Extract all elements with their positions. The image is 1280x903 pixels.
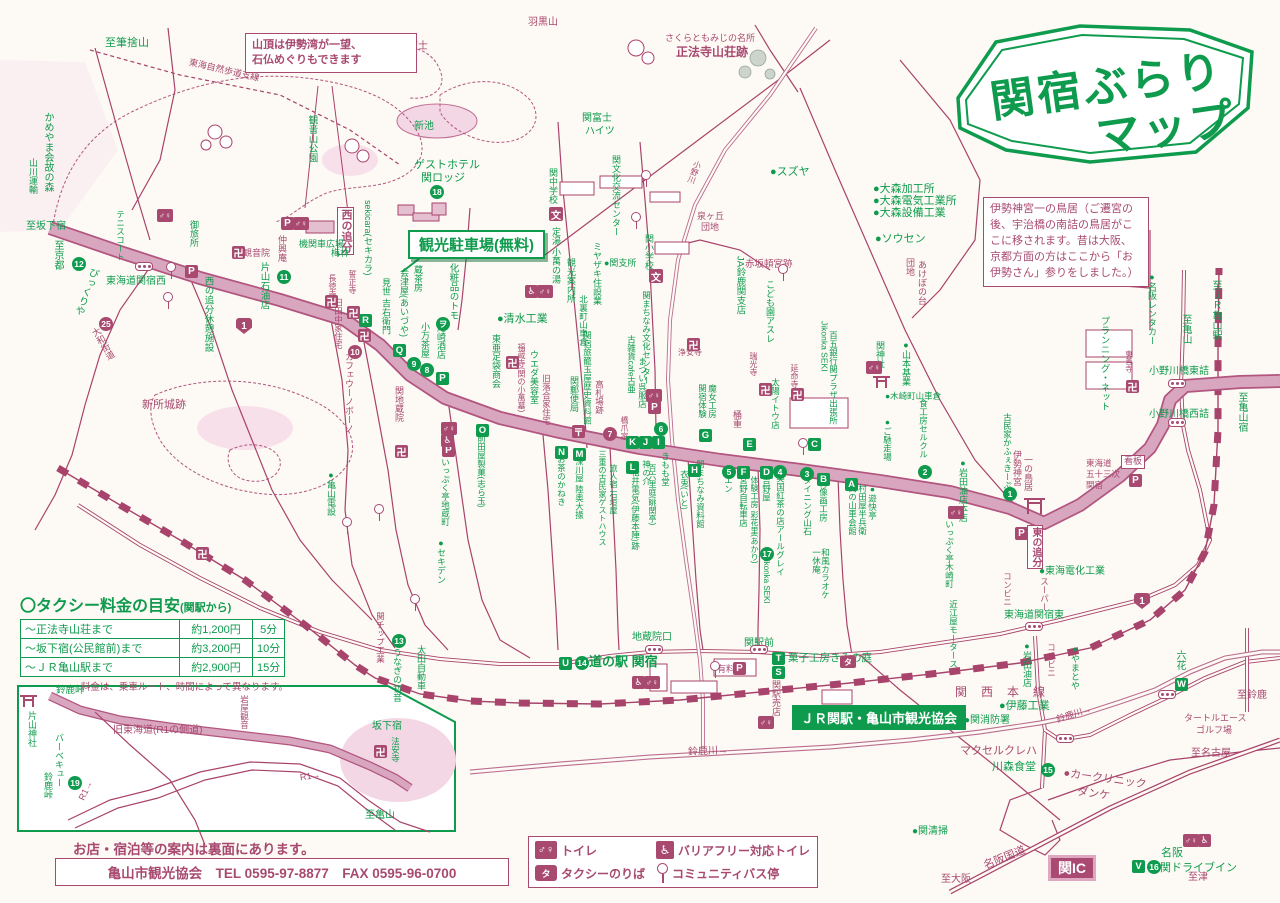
map-label: いっぷく亭木崎町 — [945, 520, 954, 588]
bus-stop-pole — [379, 513, 381, 521]
map-label: 松井電気(伊藤本陣)跡 — [631, 468, 640, 550]
map-label: 関中学校 — [548, 168, 557, 204]
letter-badge: M — [573, 448, 586, 461]
map-label: ゲストホテル — [414, 160, 480, 172]
map-label: 旧落合家住宅 — [542, 374, 551, 425]
taxi-duration: 10分 — [253, 639, 285, 658]
map-label: 化粧品のトモ — [448, 263, 458, 320]
temple-manji-icon: 卍 — [358, 329, 371, 342]
map-canvas — [0, 0, 1280, 903]
map-label: JA鈴鹿関支店 — [735, 256, 745, 315]
taxi-fare-table: 〜正法寺山荘まで約1,200円5分〜坂下宿(公民館前)まで約3,200円10分〜… — [20, 619, 285, 677]
map-label: ●伊藤工業 — [999, 701, 1050, 713]
bus-stop-icon — [710, 661, 720, 678]
parking-icon: P — [436, 372, 449, 385]
toilet-icon: ♂♀ — [535, 841, 557, 859]
number-badge: 8 — [420, 363, 434, 377]
signal-dot — [143, 265, 146, 268]
map-label: 太田自動車 — [416, 645, 425, 690]
map-label: 岩屋観音 — [240, 695, 249, 729]
map-label: 団地 — [905, 258, 914, 276]
school-icon: 文 — [549, 207, 563, 221]
map-label: 至大阪 — [941, 875, 971, 886]
map-label: 鈴鹿峠 — [43, 772, 52, 799]
bus-stop-icon — [166, 262, 176, 279]
torii-icon — [875, 376, 888, 387]
map-label: 伊勢神宮 — [1012, 450, 1021, 486]
map-label: 片山石油店 — [259, 262, 269, 310]
signal-dot — [1171, 382, 1174, 385]
map-label: こども園アスレ — [765, 280, 774, 343]
map-label: 名阪 — [1161, 848, 1183, 860]
temple-manji-icon: 卍 — [232, 246, 245, 259]
map-label: ゴルフ場 — [1196, 726, 1232, 736]
signal-dot — [1038, 625, 1041, 628]
map-label: 至ＪＲ亀山駅 — [1210, 280, 1220, 340]
map-label: 関駅売店 — [771, 680, 780, 716]
signal-dot — [1064, 737, 1067, 740]
letter-badge: V — [1132, 860, 1145, 873]
map-legend: ♂♀トイレ♿バリアフリー対応トイレタタクシーのりばコミュニティバス停 — [528, 836, 818, 888]
traffic-signal-icon — [1158, 690, 1176, 699]
map-label: 至名古屋 — [1191, 749, 1231, 760]
taxi-fare: 約2,900円 — [180, 658, 253, 677]
traffic-signal-icon — [750, 645, 768, 654]
signal-dot — [1059, 737, 1062, 740]
taxi-fare-panel: 〇タクシー料金の目安(関駅から) 〜正法寺山荘まで約1,200円5分〜坂下宿(公… — [20, 592, 288, 693]
map-label: 関富士 — [582, 114, 612, 125]
tourist-parking-banner: 観光駐車場(無料) — [408, 230, 545, 259]
letter-badge: E — [743, 438, 756, 451]
traffic-signal-icon — [1025, 622, 1043, 631]
parking-icon: P — [733, 662, 746, 675]
number-badge: 16 — [1147, 860, 1161, 874]
letter-badge: S — [772, 666, 785, 679]
letter-badge: R — [359, 314, 372, 327]
signal-dot — [1033, 625, 1036, 628]
map-label: 高札場跡 — [595, 380, 604, 414]
jr-seki-station-box: ＪＲ関駅・亀山市観光協会 — [792, 705, 966, 730]
map-label: 福蔵寺(関の小萬墓) — [517, 343, 525, 412]
number-badge: 6 — [654, 422, 668, 436]
map-label: 誓正寺 — [348, 270, 356, 294]
signal-dot — [1069, 737, 1072, 740]
wheelchair-icon: ♿ — [1198, 834, 1211, 847]
letter-badge: B — [817, 473, 830, 486]
bus-stop-icon — [631, 212, 641, 229]
map-label: 見世 吉右衛門 — [381, 278, 390, 335]
number-badge: 15 — [1041, 763, 1055, 777]
map-label: 関宿 — [1086, 481, 1103, 490]
torii-post-l — [1027, 500, 1029, 514]
number-badge: 17 — [760, 547, 774, 561]
map-label: お茶のかねき — [557, 455, 566, 506]
map-label: 六花 — [1174, 650, 1184, 670]
map-label: 観音院 — [243, 249, 270, 259]
map-label: 関ロッジ — [421, 173, 465, 185]
taxi-fare-title: 〇タクシー料金の目安(関駅から) — [20, 592, 288, 616]
torii-post-r — [885, 378, 887, 388]
signal-dot — [1176, 421, 1179, 424]
taxi-fare-row: 〜坂下宿(公民館前)まで約3,200円10分 — [21, 639, 285, 658]
map-label: ●やまとや — [1070, 644, 1079, 690]
map-label: 鈴鹿川→ — [688, 746, 729, 759]
signal-dot — [763, 648, 766, 651]
traffic-signal-icon — [1056, 734, 1074, 743]
temple-manji-icon: 卍 — [196, 547, 209, 560]
signal-dot — [758, 648, 761, 651]
bus-stop-pole — [171, 271, 173, 279]
map-label: 蔵茶房 — [413, 265, 422, 292]
taxi-stand-icon: タ — [840, 656, 856, 668]
map-label: スーパー — [1040, 577, 1049, 611]
taxi-stand-icon: タ — [535, 865, 557, 881]
torii-post-r — [32, 697, 34, 707]
map-label: かめやま会故の森 — [42, 112, 52, 192]
toilet-icon: ♂♀ — [537, 285, 553, 298]
temple-manji-icon: 卍 — [347, 306, 360, 319]
number-badge: 12 — [72, 257, 86, 271]
post-office-icon: 〒 — [572, 425, 585, 438]
map-label: Jikonka SEKI — [762, 556, 770, 604]
map-label: ●亀山電設 — [326, 470, 335, 516]
map-label: ダイニング山石 — [803, 476, 812, 536]
signal-dot — [658, 648, 661, 651]
summit-callout: 山頂は伊勢湾が一望、 石仏めぐりもできます — [245, 33, 417, 73]
map-label: 片山神社 — [27, 711, 36, 747]
map-label: 至亀山 — [365, 811, 395, 822]
legend-item: タタクシーのりば — [535, 863, 646, 883]
map-label: ハイツ — [585, 127, 615, 138]
map-label: 道の駅 関宿 — [589, 655, 658, 669]
letter-badge: A — [845, 478, 858, 491]
map-label: 旧東海道(R1の側道) — [113, 726, 202, 737]
toilet-icon: ♂♀ — [293, 217, 309, 230]
map-label: 観光案内所 — [566, 258, 575, 303]
letter-badge: T — [772, 652, 785, 665]
bus-stop-icon — [374, 504, 384, 521]
wheelchair-icon: ♿ — [441, 434, 454, 447]
signal-dot — [753, 648, 756, 651]
map-label: 体験工房 彩花里(あかり) — [750, 476, 758, 564]
torii-post-l — [876, 378, 878, 388]
taxi-destination: 〜坂下宿(公民館前)まで — [21, 639, 180, 658]
map-label: 食工房セルクル — [919, 399, 928, 459]
map-label: 西の追分休憩施設 — [203, 276, 213, 352]
map-label: 魔女工房 — [708, 384, 717, 418]
signal-dot — [1181, 382, 1184, 385]
taxi-fare-row: 〜ＪＲ亀山駅まで約2,900円15分 — [21, 658, 285, 677]
map-label: 瑞光寺 — [749, 352, 757, 376]
toilet-icon: ♂♀ — [758, 716, 774, 729]
letter-badge: K — [626, 436, 639, 449]
map-label: プランニング・ネット — [1099, 316, 1109, 411]
signal-dot — [1171, 693, 1174, 696]
map-label: 至坂下宿 — [26, 222, 66, 233]
map-label: 英国紅茶の店アールグレイ — [776, 474, 785, 576]
traffic-signal-icon — [135, 262, 153, 271]
bus-stop-icon — [641, 170, 651, 187]
footer-contact: 亀山市観光協会 TEL 0595‐97‐8877 FAX 0595‐96‐070… — [55, 858, 509, 886]
number-badge: 5 — [722, 465, 736, 479]
map-label: 地蔵院口 — [632, 633, 672, 644]
letter-badge: W — [1175, 678, 1188, 691]
signal-dot — [1028, 625, 1031, 628]
map-label: 衣兎(いと) — [680, 470, 689, 510]
map-label: 関チップ工業 — [376, 612, 385, 663]
taxi-destination: 〜ＪＲ亀山駅まで — [21, 658, 180, 677]
map-label: ●東海電化工業 — [1039, 567, 1105, 578]
footer-note: お店・宿泊等の案内は裏面にあります。 — [73, 838, 315, 858]
map-label: 前田屋製菓(志ら玉) — [477, 434, 486, 508]
map-label: ●山本基業 — [901, 340, 910, 386]
map-label: 関文化交流センター — [611, 155, 620, 236]
map-label: バーベキュー — [54, 733, 63, 787]
map-label: ●大森設備工業 — [873, 208, 946, 220]
map-label: テニスコート — [116, 210, 125, 261]
map-label: いっぷく亭地蔵町 — [441, 458, 450, 526]
torii-post-r — [1040, 500, 1042, 514]
torii-icon — [1026, 498, 1043, 512]
map-label: 東海道 — [1086, 459, 1112, 468]
legend-item: ♂♀トイレ — [535, 841, 646, 859]
map-label: 関小学校 — [644, 234, 653, 270]
temple-manji-icon: 卍 — [395, 445, 408, 458]
map-label: ●ご馳走場 — [883, 417, 892, 461]
letter-badge: I — [652, 436, 665, 449]
map-label: 五十三次 — [1086, 470, 1120, 479]
number-badge: 13 — [392, 634, 406, 648]
map-label: 関宿体験 — [698, 384, 707, 418]
taxi-fare-title-text: 〇タクシー料金の目安 — [20, 598, 180, 615]
map-label: タートルエース — [1184, 714, 1247, 724]
wheelchair-icon: ♿ — [632, 676, 645, 689]
seki-juku-walking-map: 至筆捨山関富士羽黒山さくらともみじの名所正法寺山荘跡東海自然歩道支線かめやま会故… — [0, 0, 1280, 903]
map-label: マクセルクレハ — [960, 746, 1037, 758]
map-label: ウエダ美容室 — [529, 350, 538, 404]
bus-stop-icon — [778, 264, 788, 281]
map-label: 東亜足袋商会 — [491, 334, 500, 388]
map-label: 関西本線 — [955, 686, 1059, 699]
map-label: コンビニ — [1003, 572, 1012, 606]
map-label: 至筆捨山 — [105, 38, 149, 50]
bus-stop-pole — [662, 874, 664, 883]
letter-badge: Q — [393, 344, 406, 357]
map-label: 団地 — [701, 223, 719, 233]
signal-dot — [138, 265, 141, 268]
map-label: 泉ヶ丘 — [697, 212, 724, 222]
map-label: 法安寺 — [391, 737, 400, 763]
temple-manji-icon: 卍 — [687, 338, 700, 351]
temple-manji-icon: 卍 — [506, 356, 519, 369]
map-label: 関宿旅籠玉屋歴史資料館 — [583, 331, 592, 425]
map-label: 深川屋 陸奥大掾 — [575, 457, 584, 519]
number-badge: 1 — [1003, 487, 1017, 501]
map-label: 百五銀行関プラザ出張所 — [829, 331, 838, 425]
map-label: コンビニ — [1047, 643, 1056, 677]
map-label: ●岩田油店 — [1022, 641, 1031, 687]
bus-stop-icon — [163, 292, 173, 309]
map-label: 吉野屋 — [762, 476, 771, 502]
map-label: さくらともみじの名所 — [665, 34, 755, 44]
legend-label: トイレ — [561, 842, 597, 859]
map-label: 小万茶屋 — [420, 322, 429, 358]
number-badge: 25 — [99, 317, 113, 331]
bus-stop-pole — [347, 526, 349, 534]
bus-stop-pole — [715, 670, 717, 678]
toilet-icon: ♂♀ — [948, 506, 964, 519]
map-label: 正法寺山荘跡 — [676, 46, 748, 59]
wheelchair-icon: ♿ — [656, 841, 674, 859]
bus-stop-icon — [656, 863, 668, 883]
map-label: 至亀山宿 — [1236, 392, 1246, 432]
number-badge: 2 — [918, 465, 932, 479]
map-label: 関郵便局 — [569, 376, 578, 412]
letter-badge: H — [688, 464, 701, 477]
signal-dot — [1171, 421, 1174, 424]
map-label: カフェウーノボーノ — [344, 352, 353, 433]
legend-item: ♿バリアフリー対応トイレ — [656, 841, 811, 859]
shinjo-castle-wash — [197, 406, 293, 450]
ise-torii-callout-text: 伊勢神宮一の鳥居（ご遷宮の後、宇治橋の南詰の鳥居がここに移されます。昔は大阪、京… — [990, 203, 1139, 279]
map-label: 関地蔵院 — [394, 386, 403, 422]
map-label: 坂下宿 — [372, 722, 402, 733]
number-badge: 19 — [68, 776, 82, 790]
shin-ike-pond — [397, 104, 477, 138]
torii-post-l — [23, 697, 25, 707]
number-badge: 18 — [430, 185, 444, 199]
map-label: 三重の古民家ゲストハウス — [598, 450, 606, 546]
temple-manji-icon: 卍 — [325, 295, 338, 308]
map-label: sekicara(セキカラ) — [363, 200, 372, 276]
map-label: 延命寺 — [790, 364, 798, 388]
map-label: 東海道関宿西 — [106, 277, 166, 288]
map-label: ●木崎町山車倉 — [885, 392, 941, 401]
forest-wash — [0, 60, 118, 232]
map-label: 旅人宿 石垣屋 — [609, 464, 617, 514]
ise-torii-callout: 伊勢神宮一の鳥居（ご遷宮の後、宇治橋の南詰の鳥居がここに移されます。昔は大阪、京… — [983, 197, 1149, 287]
bus-stop-pole — [415, 603, 417, 611]
signal-dot — [1181, 421, 1184, 424]
map-label: 太陽イトウ店 — [771, 378, 780, 429]
bus-stop-pole — [168, 301, 170, 309]
legend-label: タクシーのりば — [561, 865, 645, 882]
letter-badge: U — [559, 657, 572, 670]
letter-badge: J — [639, 436, 652, 449]
temple-manji-icon: 卍 — [374, 745, 387, 758]
map-label: 至津 — [1188, 873, 1208, 884]
map-label: 和風カラオケ — [821, 548, 830, 599]
taxi-fare-note: 料金は、乗車ルート、時間によって異なります。 — [20, 679, 288, 693]
temple-manji-icon: 卍 — [791, 388, 804, 401]
map-label: 川森食堂 — [992, 762, 1036, 774]
map-label: 小野川橋東詰 — [1149, 367, 1209, 378]
bus-stop-icon — [410, 594, 420, 611]
map-label: ●関支所 — [604, 259, 636, 269]
map-label: ●ソウセン — [875, 234, 926, 246]
number-badge: 3 — [800, 467, 814, 481]
number-badge: 4 — [773, 465, 787, 479]
letter-badge: D — [760, 466, 773, 479]
taxi-duration: 15分 — [253, 658, 285, 677]
map-label: 関の山車会館 — [848, 484, 857, 535]
map-label: ●清水工業 — [497, 314, 548, 326]
number-badge: ヲ — [436, 317, 450, 331]
number-badge: 14 — [575, 656, 589, 670]
map-label: 新池 — [414, 122, 434, 133]
taxi-duration: 5分 — [253, 620, 285, 639]
toilet-icon: ♂♀ — [157, 209, 173, 222]
map-label: 東海道関宿東 — [1004, 611, 1064, 622]
letter-badge: G — [699, 429, 712, 442]
seki-ic-badge: 関IC — [1048, 855, 1096, 881]
signal-dot — [1161, 693, 1164, 696]
taxi-fare: 約3,200円 — [180, 639, 253, 658]
number-badge: 10 — [348, 345, 362, 359]
map-label: 一休庵 — [812, 548, 821, 574]
signal-dot — [148, 265, 151, 268]
legend-item: コミュニティバス停 — [656, 863, 811, 883]
map-label: 桶重 — [732, 410, 741, 428]
number-badge: 9 — [407, 357, 421, 371]
summit-callout-line2: 石仏めぐりもできます — [252, 54, 362, 66]
map-label: 至京都 — [52, 240, 62, 270]
legend-label: バリアフリー対応トイレ — [678, 842, 810, 859]
map-label: 看板 — [1121, 455, 1145, 469]
map-label: 一の鳥居 — [1023, 455, 1032, 491]
bus-stop-pole — [646, 179, 648, 187]
map-label: 至亀山 — [1180, 314, 1190, 344]
map-label: 村田屋半兵衛 — [858, 484, 867, 535]
letter-badge: O — [476, 424, 489, 437]
toilet-icon: ♂♀ — [646, 389, 662, 402]
bus-stop-pole — [783, 273, 785, 281]
map-label: ●関清掃 — [912, 827, 948, 838]
signal-dot — [1166, 693, 1169, 696]
map-label: 古民家かふぇきーぷ — [1003, 413, 1012, 490]
temple-manji-icon: 卍 — [1126, 380, 1139, 393]
taxi-fare-title-suffix: (関駅から) — [180, 602, 231, 614]
parking-icon: P — [1015, 527, 1028, 540]
parking-icon: P — [185, 265, 198, 278]
map-label: 新所城跡 — [142, 400, 186, 412]
map-label: 東善寺 — [1125, 350, 1133, 373]
taxi-destination: 〜正法寺山荘まで — [21, 620, 180, 639]
map-label: 菓子工房きみの庭 — [788, 653, 872, 664]
wheelchair-icon: ♿ — [525, 285, 538, 298]
map-label: ミヤザキ住設業 — [592, 242, 601, 305]
taxi-fare-row: 〜正法寺山荘まで約1,200円5分 — [21, 620, 285, 639]
bus-stop-icon — [798, 438, 808, 455]
map-label: ●関消防署 — [964, 716, 1010, 727]
bus-stop-pole — [636, 221, 638, 229]
map-label: ●セキデン — [436, 538, 445, 584]
signal-dot — [1176, 382, 1179, 385]
map-label: 観音山公園 — [307, 115, 317, 163]
summit-callout-line1: 山頂は伊勢湾が一望、 — [252, 39, 362, 51]
taxi-fare: 約1,200円 — [180, 620, 253, 639]
school-icon: 文 — [649, 269, 663, 283]
traffic-signal-icon — [1168, 379, 1186, 388]
parking-icon: P — [1129, 474, 1142, 487]
map-label: あけぼの台 — [917, 260, 926, 305]
map-label: 至鈴鹿 — [1237, 691, 1267, 702]
traffic-signal-icon — [645, 645, 663, 654]
bus-stop-icon — [342, 517, 352, 534]
map-label: 古雑貨cafe古亜 — [627, 335, 636, 394]
map-label: Jikonka SEKI — [820, 321, 829, 372]
map-label: 山川運輸 — [28, 158, 37, 194]
